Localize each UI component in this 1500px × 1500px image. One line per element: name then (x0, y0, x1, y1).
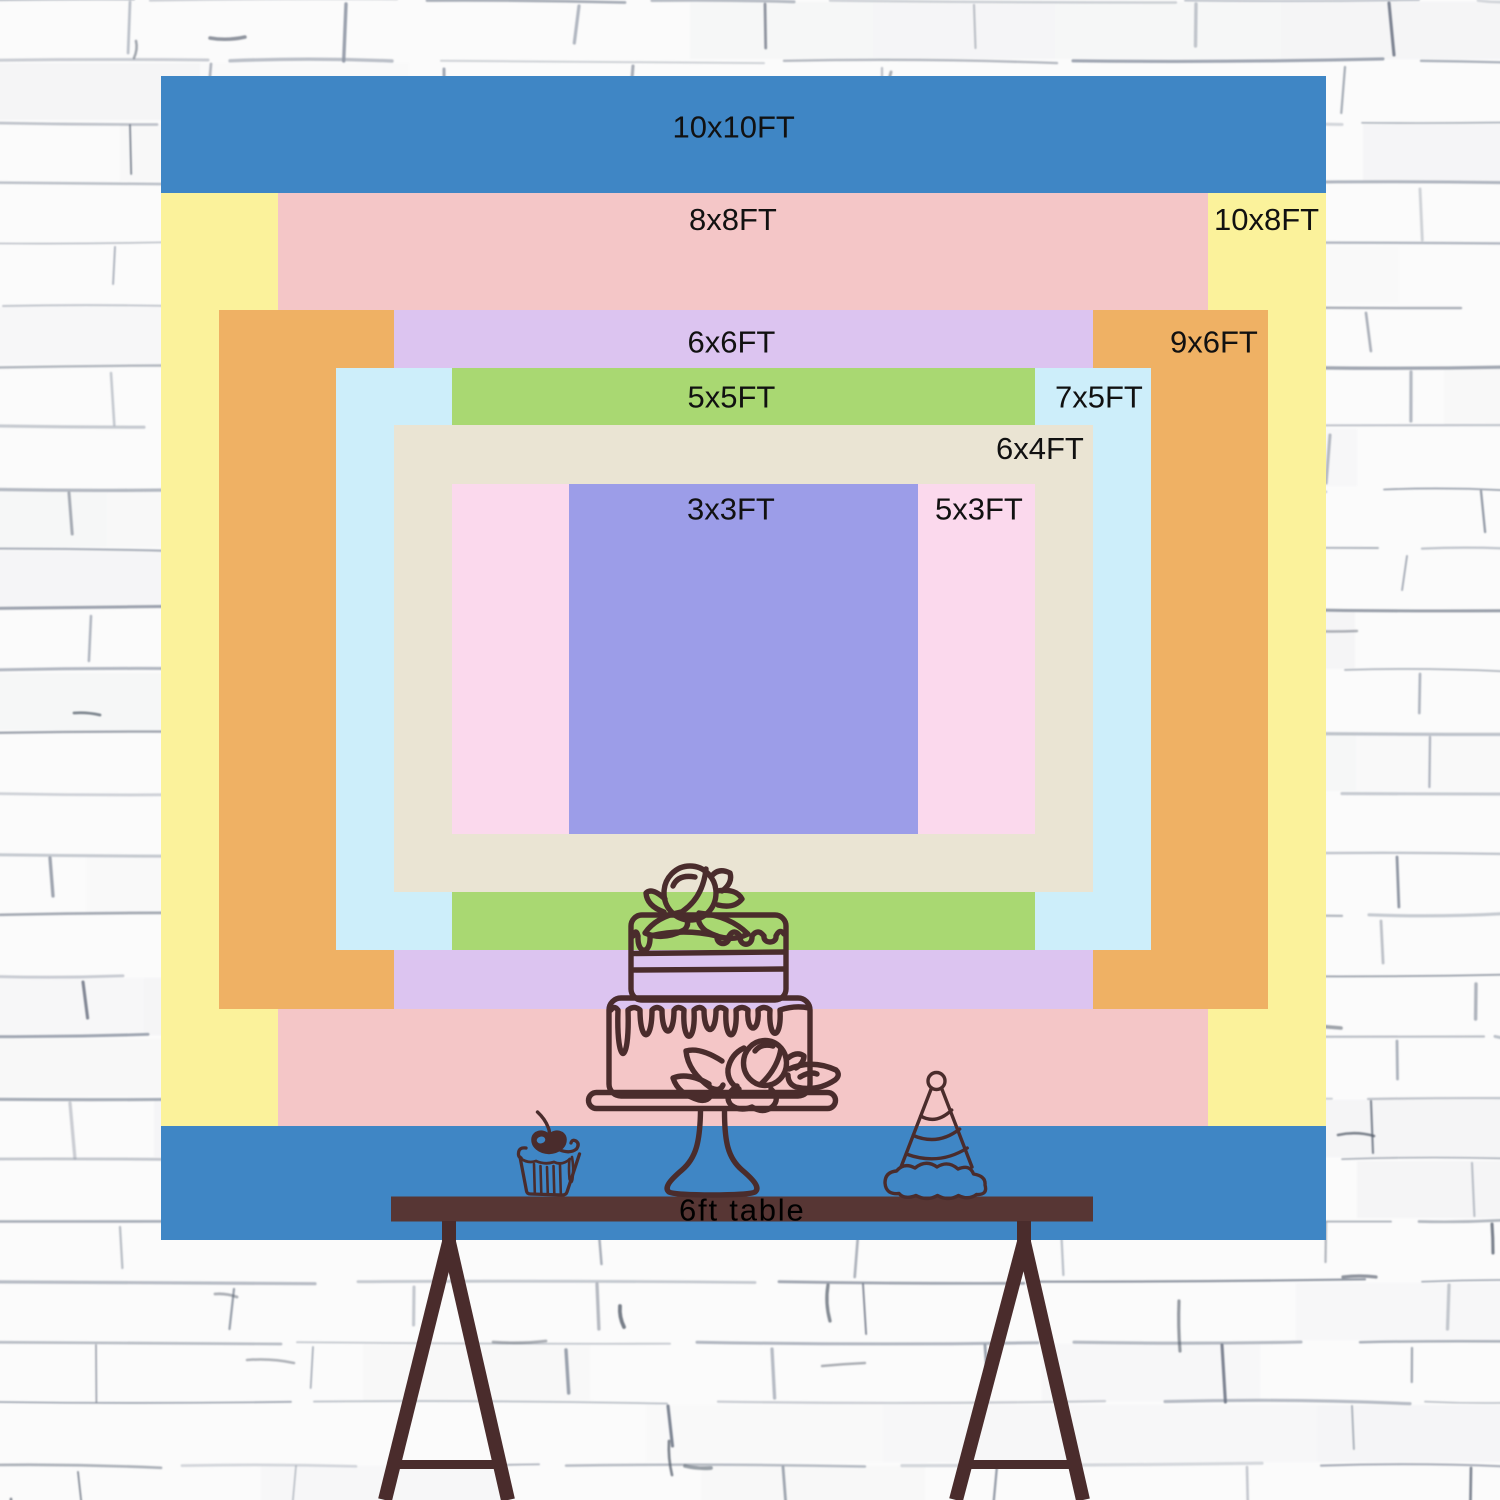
svg-text:7x5FT: 7x5FT (1055, 380, 1143, 415)
svg-text:3x3FT: 3x3FT (687, 492, 775, 527)
svg-text:10x8FT: 10x8FT (1214, 202, 1319, 237)
svg-text:8x8FT: 8x8FT (689, 202, 777, 237)
svg-text:10x10FT: 10x10FT (673, 110, 795, 145)
svg-text:9x6FT: 9x6FT (1170, 325, 1258, 360)
svg-text:6x4FT: 6x4FT (996, 431, 1084, 466)
svg-text:5x3FT: 5x3FT (935, 492, 1023, 527)
svg-text:6ft table: 6ft table (679, 1193, 806, 1228)
svg-text:5x5FT: 5x5FT (688, 380, 776, 415)
svg-text:6x6FT: 6x6FT (688, 325, 776, 360)
